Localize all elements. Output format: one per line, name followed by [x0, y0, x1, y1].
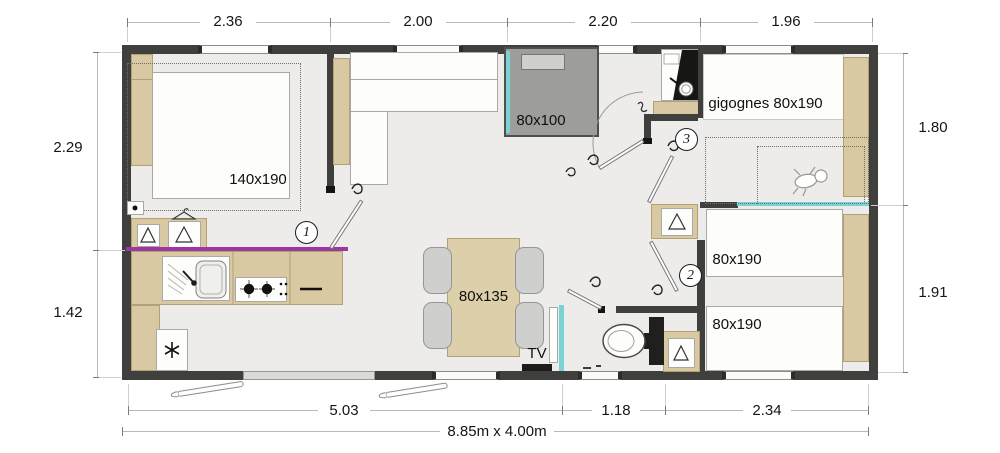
gigognes-label: gigognes 80x190 — [695, 96, 836, 112]
window-bottom-wc — [578, 371, 622, 380]
room-marker-2: 2 — [679, 264, 702, 287]
chair — [515, 247, 544, 294]
sofa-seat — [350, 79, 498, 112]
dim-tick — [122, 427, 123, 436]
window-top-bedroom — [198, 45, 272, 54]
wall-light — [127, 201, 144, 215]
dimension-line-left — [97, 52, 98, 377]
extension-line — [99, 52, 121, 53]
bed-clearance-outline — [757, 146, 865, 204]
room-marker-1: 1 — [295, 221, 318, 244]
dim-tick — [128, 406, 129, 415]
twin-bed-label: 80x190 — [708, 252, 766, 268]
chair — [423, 302, 452, 349]
extension-line — [878, 53, 903, 54]
extension-line — [99, 250, 125, 251]
tv-unit — [522, 364, 552, 371]
extension-line — [871, 205, 903, 206]
dim-tick — [868, 406, 869, 415]
washbasin-vanity — [661, 49, 699, 101]
dim-tick — [562, 406, 563, 415]
dim-top-4: 1.96 — [758, 13, 814, 30]
extension-line — [128, 384, 129, 406]
tv-label: TV — [521, 346, 553, 362]
sofa-back — [350, 52, 498, 80]
extension-line — [868, 384, 869, 406]
sliding-bay-door — [243, 371, 375, 380]
door-jamb — [326, 186, 335, 193]
extension-line — [99, 377, 121, 378]
extension-line — [878, 372, 903, 373]
dim-left-2: 1.42 — [44, 304, 92, 321]
bedside-lamp — [168, 221, 201, 249]
dim-left-1: 2.29 — [44, 139, 92, 156]
window-bottom-living — [432, 371, 500, 380]
dimension-line-right — [903, 53, 904, 372]
dim-right-1: 1.80 — [910, 119, 956, 136]
table-label: 80x135 — [447, 289, 520, 305]
bedside-lamp — [137, 224, 160, 247]
extension-line — [562, 384, 563, 406]
window-bottom-kidsroom — [722, 371, 795, 380]
bathroom-wall-stub — [644, 114, 651, 140]
kitchen-sink — [162, 256, 230, 301]
dim-tick — [507, 18, 508, 27]
dim-tick — [330, 18, 331, 27]
overall-size-label: 8.85m x 4.00m — [440, 423, 554, 440]
wc-wall — [616, 306, 705, 313]
door-jamb — [643, 138, 652, 144]
window-handle-icon — [171, 381, 448, 398]
door-jamb — [598, 306, 605, 313]
dim-tick — [868, 427, 869, 436]
dim-bottom-3: 2.34 — [743, 402, 791, 419]
dim-right-2: 1.91 — [910, 284, 956, 301]
bathroom-wall — [644, 114, 698, 121]
dim-tick — [665, 406, 666, 415]
hall-sliding-door — [559, 305, 564, 371]
shower-head-unit — [521, 54, 565, 70]
twin-bed-label: 80x190 — [708, 317, 766, 333]
dim-top-2: 2.00 — [390, 13, 446, 30]
dim-top-1: 2.36 — [200, 13, 256, 30]
dim-bottom-2: 1.18 — [592, 402, 640, 419]
living-cabinet — [333, 58, 350, 165]
dim-tick — [127, 18, 128, 27]
extension-line — [700, 27, 701, 42]
dim-tick — [700, 18, 701, 27]
chair — [423, 247, 452, 294]
window-top-bathroom — [595, 45, 637, 54]
extension-line — [507, 27, 508, 42]
room-marker-3: 3 — [675, 128, 698, 151]
extension-line — [872, 27, 873, 42]
sofa-wing — [350, 111, 388, 185]
shower-label: 80x100 — [496, 113, 586, 129]
master-bed-label: 140x190 — [213, 172, 303, 188]
nightstand-lamp — [668, 338, 695, 368]
extension-line — [127, 27, 128, 42]
extension-line — [330, 27, 331, 42]
dim-bottom-1: 5.03 — [318, 402, 370, 419]
nightstand-lamp — [661, 208, 693, 236]
dim-tick — [872, 18, 873, 27]
chair — [515, 302, 544, 349]
extension-line — [665, 384, 666, 406]
hob — [235, 277, 287, 302]
floorplan: 140x190 80x100 gigognes 80x190 80x190 80… — [0, 0, 1000, 453]
window-top-kidsroom — [722, 45, 795, 54]
fridge — [156, 329, 188, 371]
dim-top-3: 2.20 — [575, 13, 631, 30]
bed-base — [843, 214, 869, 362]
